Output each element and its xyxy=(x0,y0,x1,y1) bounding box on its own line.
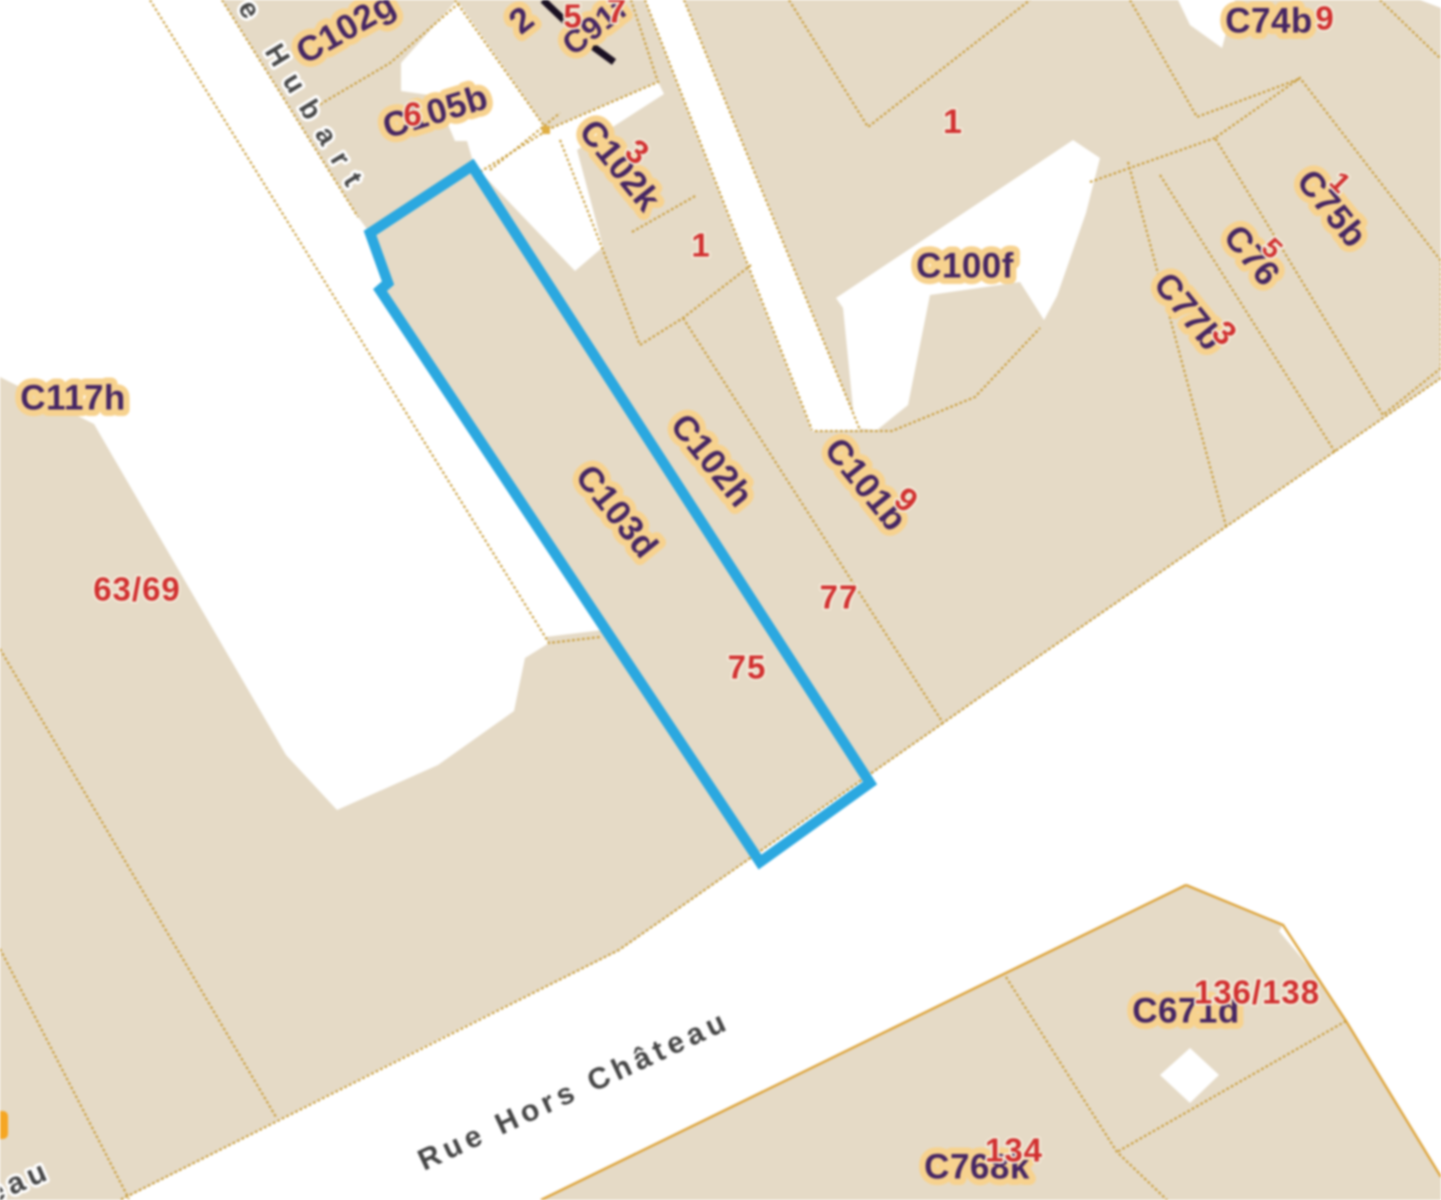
svg-text:136/138: 136/138 xyxy=(1194,974,1320,1011)
svg-text:C100f: C100f xyxy=(916,246,1014,285)
svg-text:75: 75 xyxy=(728,649,767,686)
svg-text:C74b: C74b xyxy=(1225,1,1313,40)
svg-text:77: 77 xyxy=(820,579,859,616)
svg-text:7: 7 xyxy=(607,0,627,30)
svg-text:6: 6 xyxy=(403,96,422,133)
svg-text:5: 5 xyxy=(563,0,582,35)
svg-text:1: 1 xyxy=(943,103,963,141)
svg-text:134: 134 xyxy=(985,1132,1043,1169)
svg-text:63/69: 63/69 xyxy=(93,571,181,608)
svg-text:1: 1 xyxy=(691,227,710,264)
svg-text:9: 9 xyxy=(1315,0,1334,37)
svg-text:C117h: C117h xyxy=(20,378,126,417)
